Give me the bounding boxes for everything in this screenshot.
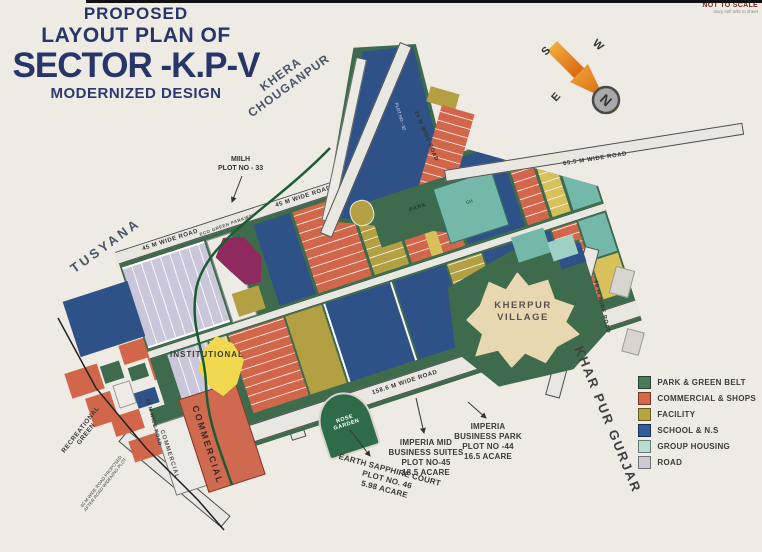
imperia-mid-leader-arrow: [416, 398, 424, 433]
legend-color-chip: [638, 408, 651, 421]
title-layout-plan: LAYOUT PLAN OF: [0, 24, 272, 48]
miilh-leader-arrow: [232, 176, 242, 202]
legend-row: GROUP HOUSING: [638, 440, 756, 453]
structure-block: [621, 328, 645, 356]
gh-label: GH: [440, 190, 499, 214]
legend-row: FACILITY: [638, 408, 756, 421]
legend-row: SCHOOL & N.S: [638, 424, 756, 437]
road-label: 158.6 M WIDE ROAD: [371, 369, 438, 396]
legend-row: ROAD: [638, 456, 756, 469]
miilh-plot-label: MIILH PLOT NO - 33: [218, 155, 263, 173]
scale-note: NOT TO SCALE story self tells to sheet: [702, 2, 758, 14]
plot-block: [128, 363, 149, 382]
legend-label: COMMERCIAL & SHOPS: [657, 394, 756, 403]
park-label: PARK: [409, 202, 428, 213]
plot32-label: PLOT NO - 32: [394, 102, 407, 131]
khar-pur-gurjar-label: KHAR PUR GURJAR: [571, 343, 645, 497]
institutional-label: INSTITUTIONAL: [170, 350, 244, 359]
imperia-park-annotation: IMPERIA BUSINESS PARK PLOT NO -44 16.5 A…: [446, 422, 530, 462]
fine-print: story self tells to sheet: [702, 9, 758, 14]
plot-block: [100, 361, 125, 384]
legend-row: COMMERCIAL & SHOPS: [638, 392, 756, 405]
legend-color-chip: [638, 440, 651, 453]
road-label: 65.5 M WIDE ROAD: [563, 151, 628, 167]
legend-label: PARK & GREEN BELT: [657, 378, 745, 387]
layout-plan-canvas: PROPOSED LAYOUT PLAN OF SECTOR -K.P-V MO…: [0, 0, 762, 552]
legend-color-chip: [638, 456, 651, 469]
legend: PARK & GREEN BELTCOMMERCIAL & SHOPSFACIL…: [638, 376, 756, 472]
school-label: SCHOOL: [496, 260, 515, 265]
road-65m: 65.5 M WIDE ROAD: [444, 123, 744, 182]
legend-row: PARK & GREEN BELT: [638, 376, 756, 389]
map-border-top: [86, 0, 762, 3]
compass-icon: N S W E: [532, 26, 632, 118]
legend-color-chip: [638, 376, 651, 389]
title-block: PROPOSED LAYOUT PLAN OF SECTOR -K.P-V MO…: [0, 4, 272, 102]
legend-label: ROAD: [657, 458, 682, 467]
kherpur-village-label: KHERPUR VILLAGE: [478, 300, 568, 325]
title-modernized: MODERNIZED DESIGN: [0, 85, 272, 102]
legend-label: GROUP HOUSING: [657, 442, 730, 451]
legend-label: FACILITY: [657, 410, 695, 419]
svg-text:E: E: [549, 91, 563, 104]
svg-text:W: W: [590, 37, 606, 53]
title-sector: SECTOR -K.P-V: [0, 48, 272, 85]
title-proposed: PROPOSED: [0, 4, 272, 24]
imperia-park-leader-arrow: [468, 402, 486, 418]
not-to-scale-text: NOT TO SCALE: [702, 2, 758, 9]
legend-color-chip: [638, 392, 651, 405]
svg-text:S: S: [539, 45, 553, 58]
legend-color-chip: [638, 424, 651, 437]
legend-label: SCHOOL & N.S: [657, 426, 718, 435]
